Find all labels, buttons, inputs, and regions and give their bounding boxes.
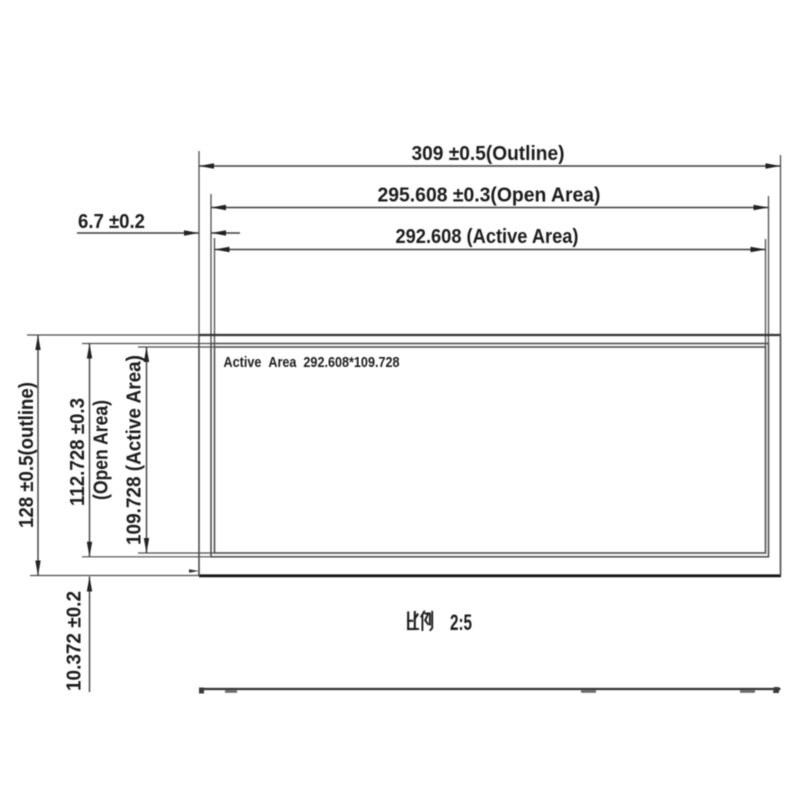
svg-text:10.372 ±0.2: 10.372 ±0.2 — [64, 591, 86, 691]
svg-text:295.608 ±0.3(Open Area): 295.608 ±0.3(Open Area) — [378, 185, 601, 207]
svg-text:Active Area 292.608*109.728: Active Area 292.608*109.728 — [224, 354, 400, 371]
svg-text:309 ±0.5(Outline): 309 ±0.5(Outline) — [412, 143, 565, 165]
svg-text:109.728 (Active Area): 109.728 (Active Area) — [124, 355, 146, 545]
svg-text:2:5: 2:5 — [450, 610, 472, 635]
svg-text:(Open Area): (Open Area) — [91, 400, 113, 500]
svg-text:112.728 ±0.3: 112.728 ±0.3 — [67, 398, 89, 506]
svg-text:128 ±0.5(outline): 128 ±0.5(outline) — [16, 382, 38, 528]
svg-text:292.608 (Active Area): 292.608 (Active Area) — [396, 226, 579, 248]
svg-text:6.7 ±0.2: 6.7 ±0.2 — [78, 211, 145, 233]
